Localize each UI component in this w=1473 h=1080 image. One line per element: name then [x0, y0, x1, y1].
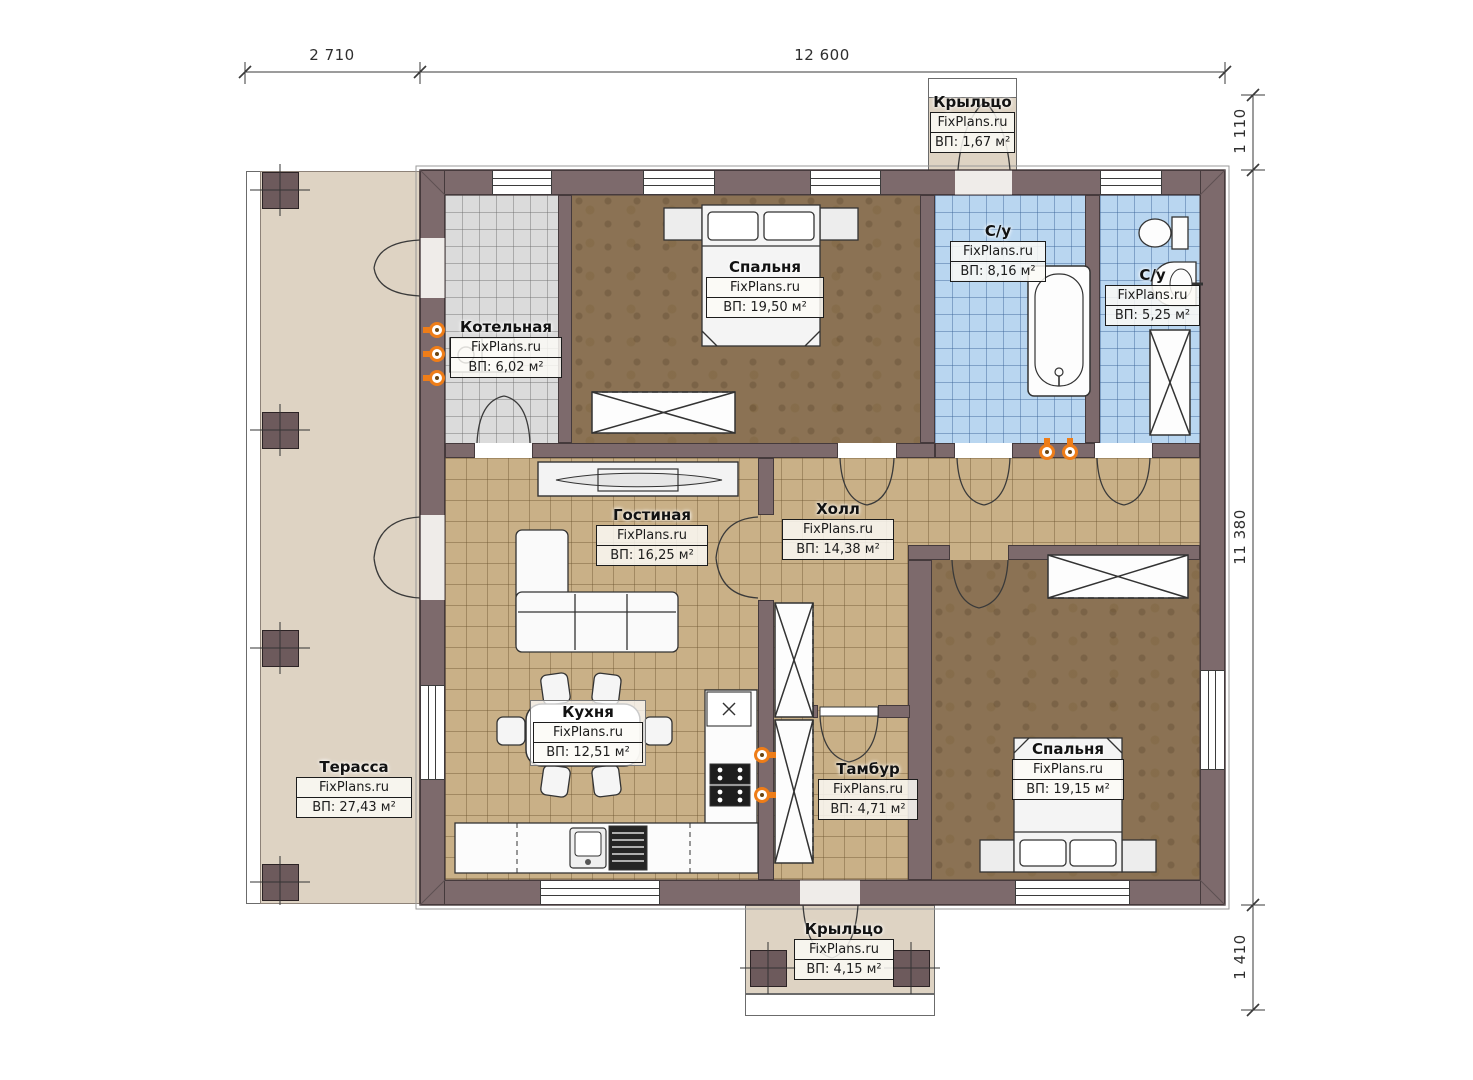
door-arc — [840, 458, 894, 505]
room-name: Терасса — [296, 758, 412, 776]
plan-linework — [0, 0, 1473, 1080]
radiator-icon — [423, 348, 444, 361]
room-label-bath2: С/у FixPlans.ru ВП: 5,25 м² — [1105, 266, 1200, 326]
door-arc — [374, 517, 420, 598]
door-arc — [820, 716, 878, 762]
room-area: ВП: 27,43 м² — [297, 798, 411, 817]
room-area: ВП: 19,15 м² — [1013, 780, 1123, 799]
room-label-hall: Холл FixPlans.ru ВП: 14,38 м² — [782, 500, 894, 560]
room-name: Спальня — [706, 258, 824, 276]
room-name: Кухня — [533, 703, 643, 721]
room-label-bath1: С/у FixPlans.ru ВП: 8,16 м² — [950, 222, 1046, 282]
door-arc — [374, 240, 420, 296]
room-label-kitchen: Кухня FixPlans.ru ВП: 12,51 м² — [530, 700, 646, 766]
room-label-boiler: Котельная FixPlans.ru ВП: 6,02 м² — [450, 318, 562, 378]
door-leaf — [820, 707, 878, 716]
dimension-label: 11 380 — [1231, 497, 1249, 577]
shower-cabin-icon — [1150, 330, 1190, 435]
floor-plan: 2 710 12 600 1 110 11 380 1 410 Крыльцо … — [0, 0, 1473, 1080]
dimension-label: 1 410 — [1231, 917, 1249, 997]
brand-watermark: FixPlans.ru — [297, 778, 411, 798]
room-label-porch-top: Крыльцо FixPlans.ru ВП: 1,67 м² — [930, 93, 1015, 153]
room-area: ВП: 6,02 м² — [451, 358, 561, 377]
brand-watermark: FixPlans.ru — [783, 520, 893, 540]
room-area: ВП: 16,25 м² — [597, 546, 707, 565]
brand-watermark: FixPlans.ru — [951, 242, 1045, 262]
door-arc — [477, 396, 530, 443]
dimension-label: 2 710 — [282, 46, 382, 64]
door-arc — [716, 517, 758, 598]
room-name: Крыльцо — [930, 93, 1015, 111]
door-arc — [957, 458, 1010, 505]
room-name: Холл — [782, 500, 894, 518]
brand-watermark: FixPlans.ru — [707, 278, 823, 298]
brand-watermark: FixPlans.ru — [534, 723, 642, 743]
closet-icon — [775, 603, 813, 717]
room-label-porch-bottom: Крыльцо FixPlans.ru ВП: 4,15 м² — [794, 920, 894, 980]
room-label-living: Гостиная FixPlans.ru ВП: 16,25 м² — [596, 506, 708, 566]
wardrobe-icon — [592, 392, 735, 433]
room-name: Котельная — [450, 318, 562, 336]
dimension-label: 1 110 — [1231, 91, 1249, 171]
room-name: Крыльцо — [794, 920, 894, 938]
brand-watermark: FixPlans.ru — [819, 780, 917, 800]
radiator-icon — [1041, 438, 1054, 459]
room-name: Гостиная — [596, 506, 708, 524]
room-label-bedroom2: Спальня FixPlans.ru ВП: 19,15 м² — [1012, 740, 1124, 800]
brand-watermark: FixPlans.ru — [597, 526, 707, 546]
wardrobe-icon — [1048, 555, 1188, 598]
room-area: ВП: 14,38 м² — [783, 540, 893, 559]
room-area: ВП: 5,25 м² — [1106, 306, 1199, 325]
radiator-icon — [1064, 438, 1077, 459]
room-name: Тамбур — [818, 760, 918, 778]
radiator-icon — [756, 789, 777, 802]
radiator-icon — [423, 324, 444, 337]
room-area: ВП: 4,15 м² — [795, 960, 893, 979]
room-area: ВП: 19,50 м² — [707, 298, 823, 317]
toilet-icon — [1139, 217, 1188, 249]
brand-watermark: FixPlans.ru — [795, 940, 893, 960]
room-label-bedroom1: Спальня FixPlans.ru ВП: 19,50 м² — [706, 258, 824, 318]
brand-watermark: FixPlans.ru — [451, 338, 561, 358]
kitchen-counter-icon — [705, 690, 757, 823]
door-arc — [952, 560, 1008, 608]
room-area: ВП: 8,16 м² — [951, 262, 1045, 281]
door-arc — [1097, 458, 1150, 505]
brand-watermark: FixPlans.ru — [1013, 760, 1123, 780]
bathtub-icon — [1028, 266, 1090, 396]
closet-icon — [775, 720, 813, 863]
radiator-icon — [423, 372, 444, 385]
room-label-vestibule: Тамбур FixPlans.ru ВП: 4,71 м² — [818, 760, 918, 820]
tv-stand-icon — [538, 462, 738, 496]
brand-watermark: FixPlans.ru — [1106, 286, 1199, 306]
radiator-icon — [756, 749, 777, 762]
room-name: С/у — [1105, 266, 1200, 284]
room-label-terrace: Терасса FixPlans.ru ВП: 27,43 м² — [296, 758, 412, 818]
room-name: С/у — [950, 222, 1046, 240]
sink-icon — [570, 828, 606, 868]
room-name: Спальня — [1012, 740, 1124, 758]
room-area: ВП: 1,67 м² — [931, 133, 1014, 152]
dimension-label: 12 600 — [772, 46, 872, 64]
kitchen-counter-icon — [455, 823, 758, 873]
room-area: ВП: 4,71 м² — [819, 800, 917, 819]
room-area: ВП: 12,51 м² — [534, 743, 642, 762]
brand-watermark: FixPlans.ru — [931, 113, 1014, 133]
oven-icon — [609, 826, 647, 870]
